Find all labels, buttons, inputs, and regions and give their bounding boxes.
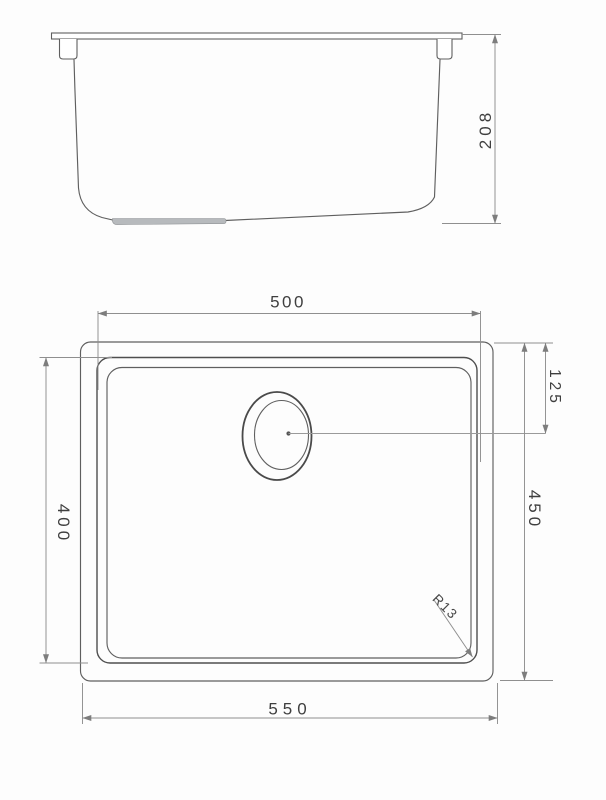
bowl-bottom-edge	[107, 368, 471, 659]
dim-label-height: 208	[476, 109, 495, 149]
dim-label-drain-offset: 125	[546, 369, 563, 407]
sink-plan-view: 500 400 450 125 550 R13	[40, 293, 564, 725]
dim-label-bowl-depth: 400	[54, 504, 73, 544]
sink-body-outline	[74, 60, 440, 221]
bowl-rim-edge	[97, 358, 477, 664]
drain-outer-circle	[243, 392, 312, 480]
mounting-clip-left	[60, 39, 78, 59]
drain-recess-strip	[113, 219, 227, 225]
dim-label-bowl-width: 500	[270, 293, 306, 312]
dim-label-overall-width: 550	[268, 700, 311, 719]
dim-label-corner-radius: R13	[430, 591, 461, 622]
dim-label-overall-depth: 450	[525, 490, 544, 530]
sink-technical-drawing: 208 500 400 450 125	[0, 0, 606, 800]
sink-side-view: 208	[52, 33, 502, 225]
rim-flange	[52, 33, 463, 39]
drain-inner-circle	[255, 401, 309, 470]
technical-drawing-canvas: 208 500 400 450 125	[0, 0, 606, 800]
mounting-clip-right	[437, 39, 452, 59]
